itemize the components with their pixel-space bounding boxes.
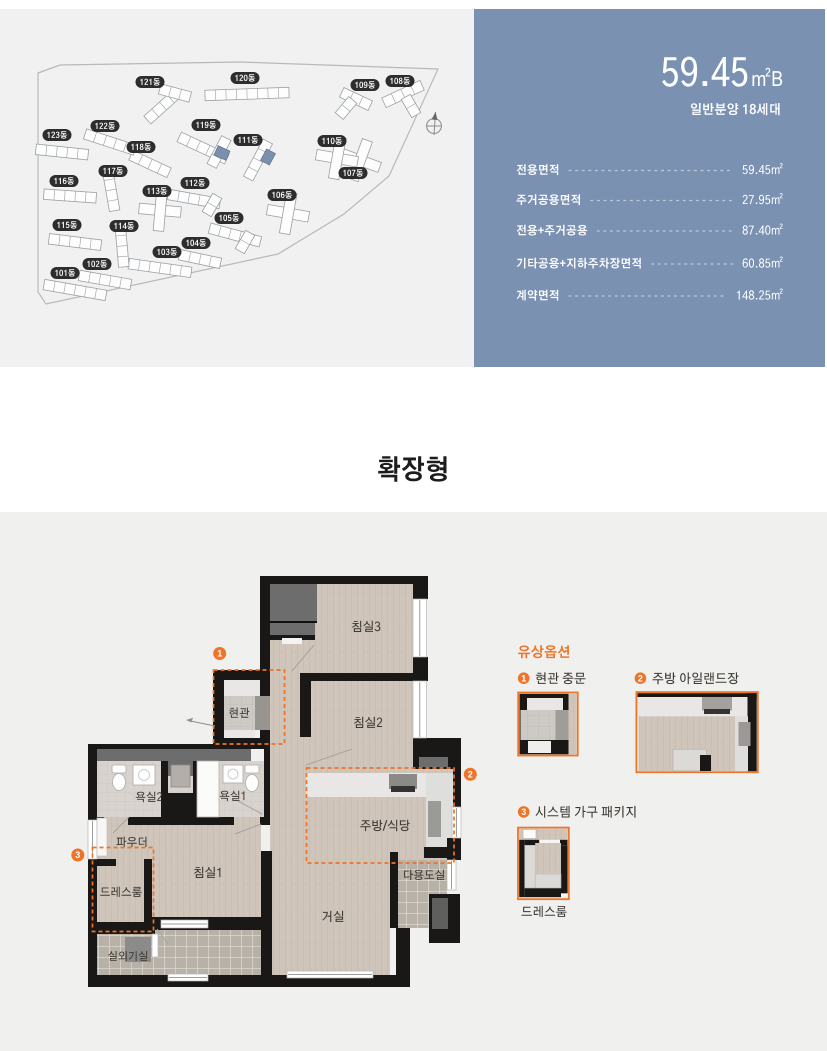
svg-text:3: 3: [75, 850, 80, 860]
svg-text:3: 3: [521, 807, 526, 817]
svg-text:2: 2: [638, 673, 643, 683]
svg-text:2: 2: [468, 770, 473, 780]
svg-text:1: 1: [217, 649, 222, 659]
svg-text:1: 1: [521, 673, 526, 683]
